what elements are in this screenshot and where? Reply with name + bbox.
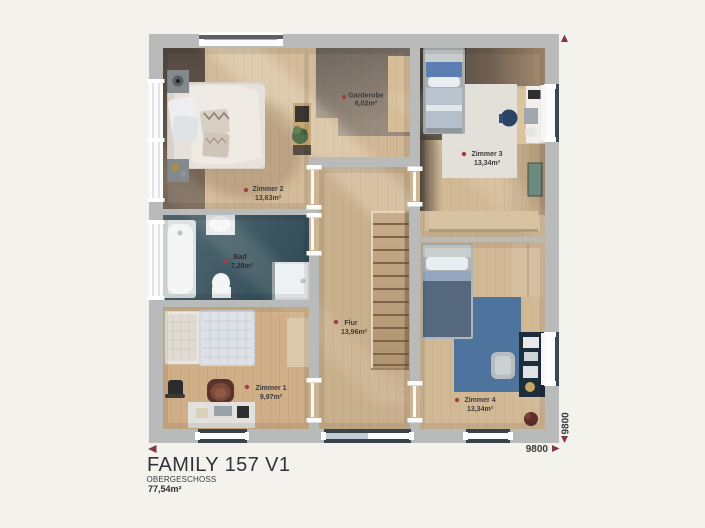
svg-text:Bad: Bad	[233, 254, 246, 261]
svg-text:13,34m²: 13,34m²	[474, 160, 501, 167]
svg-text:9800: 9800	[561, 412, 572, 435]
svg-text:9,97m²: 9,97m²	[260, 394, 283, 401]
svg-text:13,96m²: 13,96m²	[341, 329, 368, 336]
svg-text:Zimmer 3: Zimmer 3	[471, 151, 502, 158]
svg-text:7,28m²: 7,28m²	[231, 263, 254, 270]
svg-text:Zimmer 1: Zimmer 1	[255, 385, 286, 392]
svg-text:Garderobe: Garderobe	[348, 93, 384, 100]
svg-text:FAMILY 157 V1: FAMILY 157 V1	[147, 454, 290, 476]
svg-text:13,63m²: 13,63m²	[255, 195, 282, 202]
svg-text:Flur: Flur	[344, 320, 357, 327]
svg-text:6,02m²: 6,02m²	[355, 101, 378, 108]
svg-text:77,54m²: 77,54m²	[148, 484, 182, 494]
svg-text:Zimmer 2: Zimmer 2	[252, 186, 283, 193]
svg-text:13,34m²: 13,34m²	[467, 406, 494, 413]
svg-text:9800: 9800	[526, 444, 549, 455]
svg-text:OBERGESCHOSS: OBERGESCHOSS	[147, 475, 217, 484]
svg-text:Zimmer 4: Zimmer 4	[464, 397, 495, 404]
